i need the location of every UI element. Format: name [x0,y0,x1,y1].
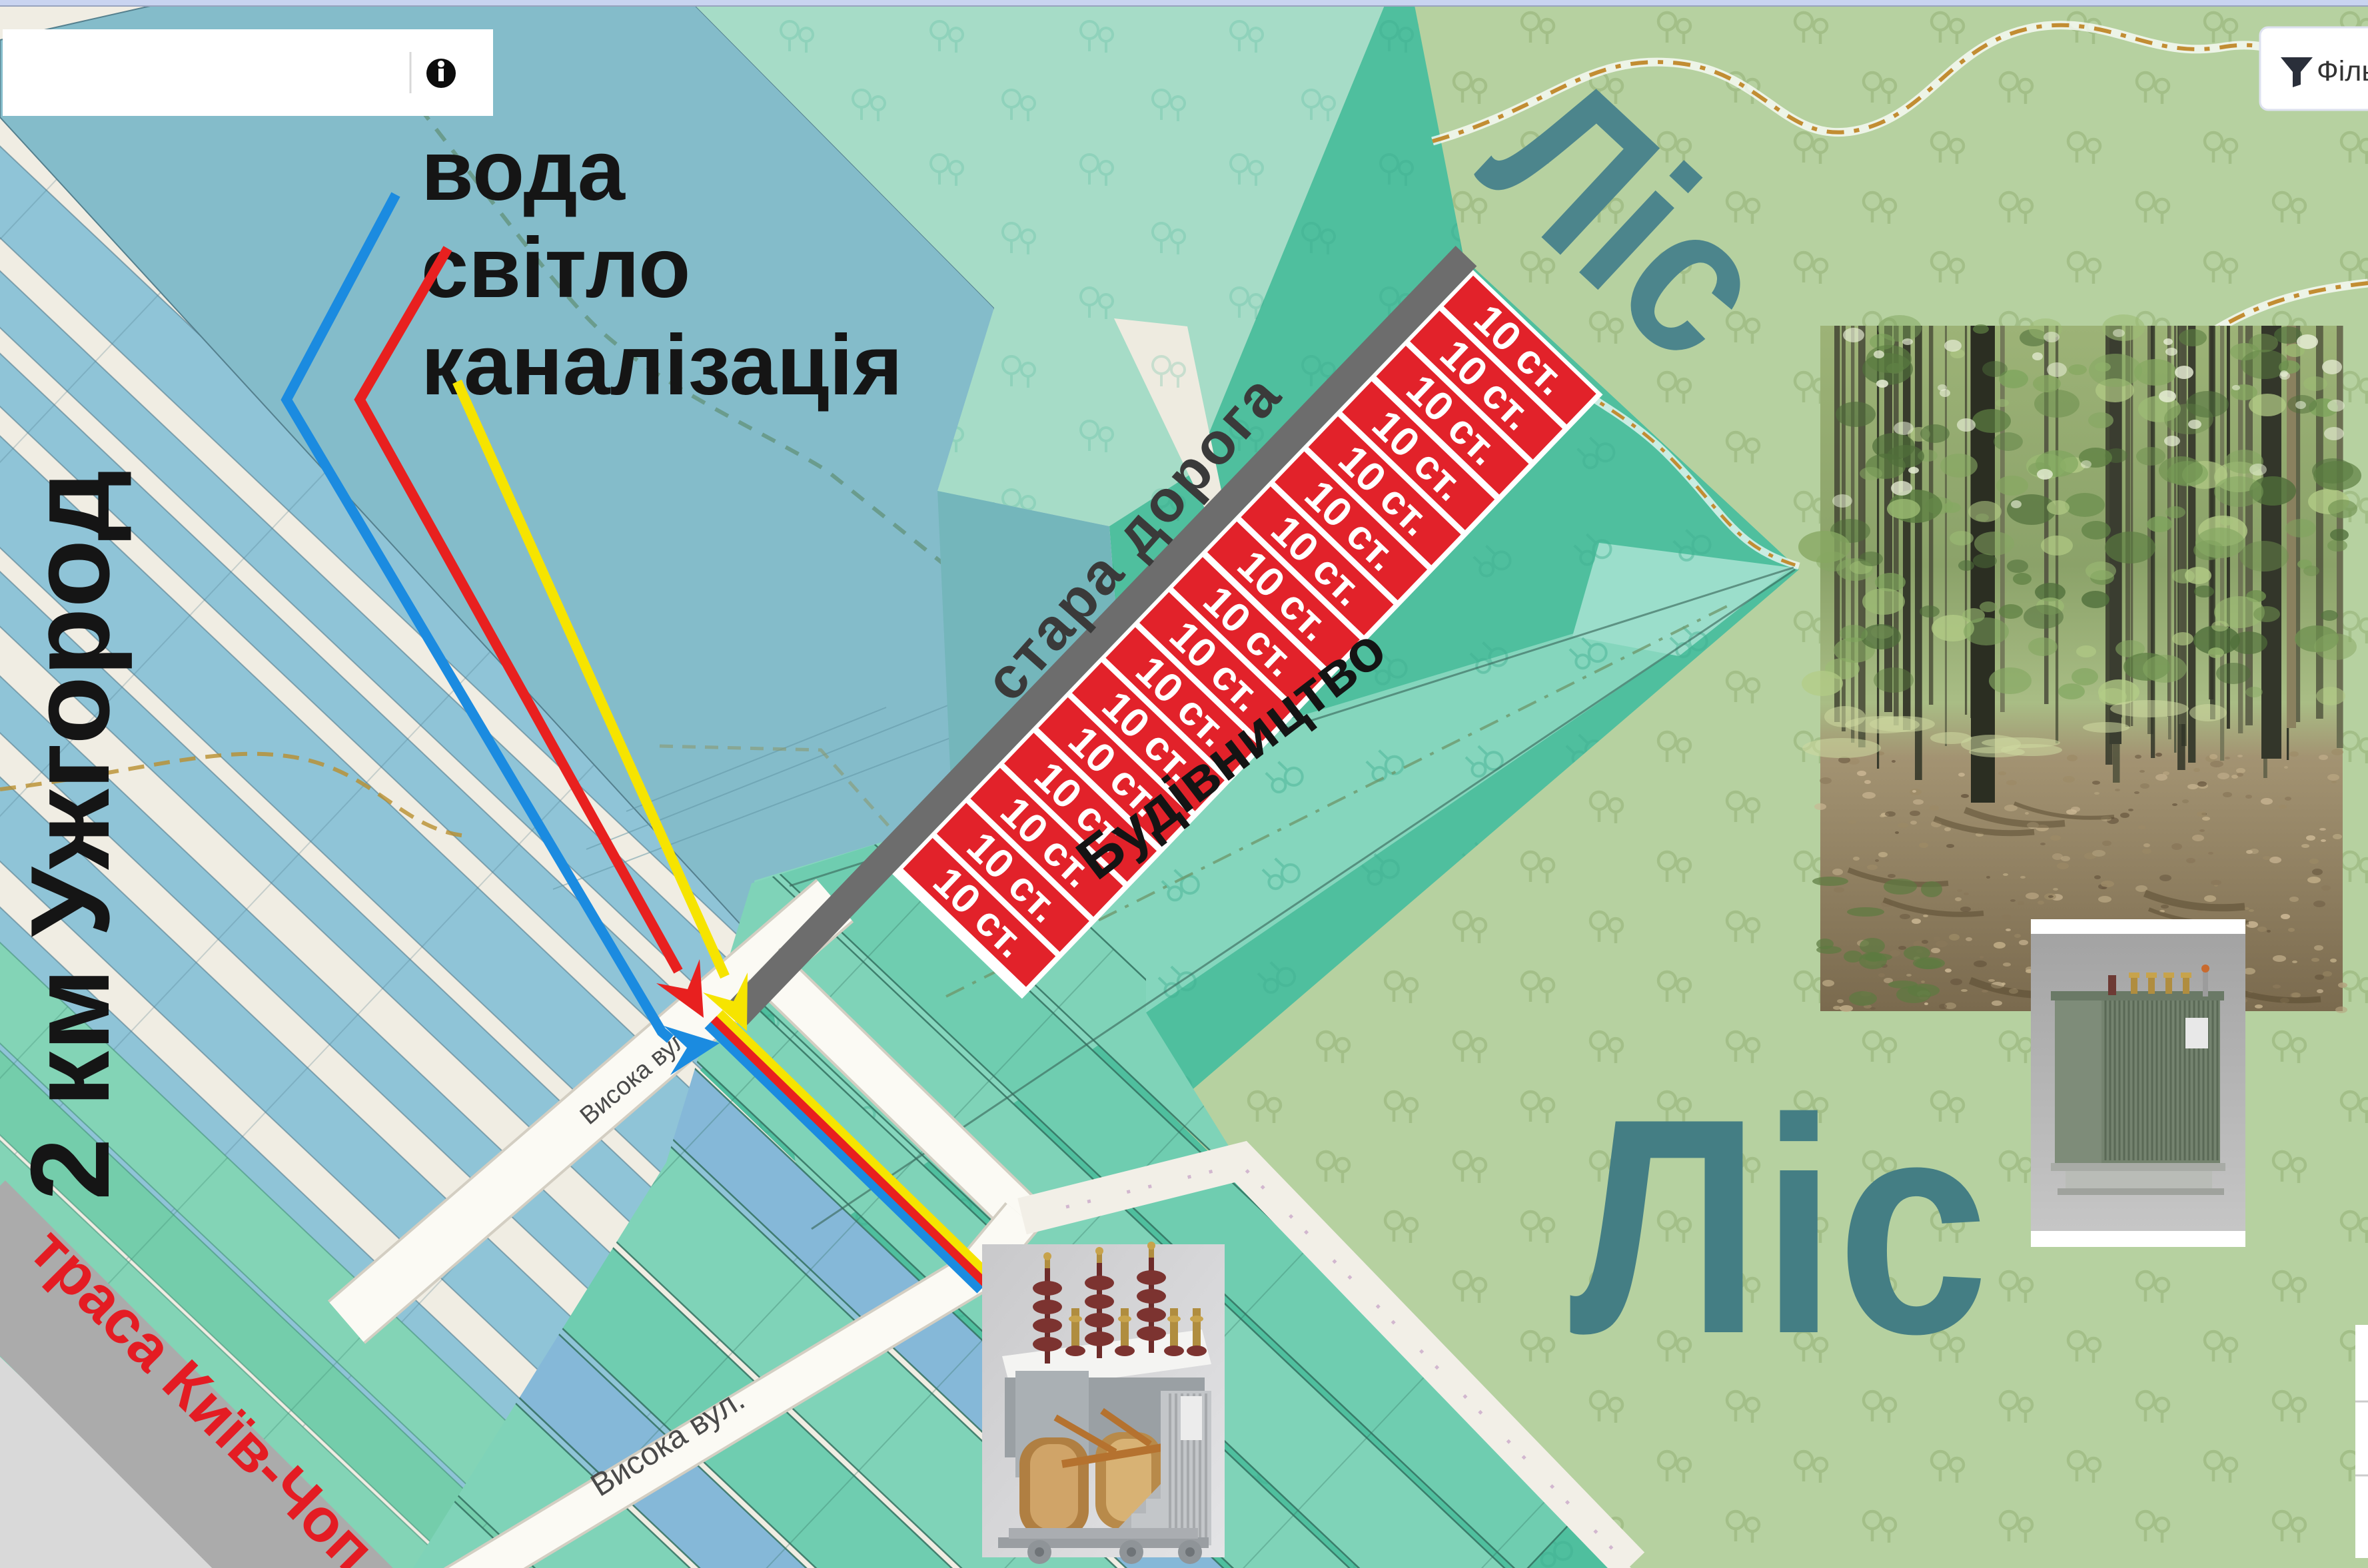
svg-text:2 км Ужгород: 2 км Ужгород [7,470,133,1200]
svg-text:Ліс: Ліс [1569,1056,1989,1397]
svg-text:Фільтр: Фільтр [2317,55,2368,87]
svg-text:вода: вода [421,123,626,218]
svg-text:світло: світло [421,220,690,316]
svg-text:каналізація: каналізація [421,318,903,413]
